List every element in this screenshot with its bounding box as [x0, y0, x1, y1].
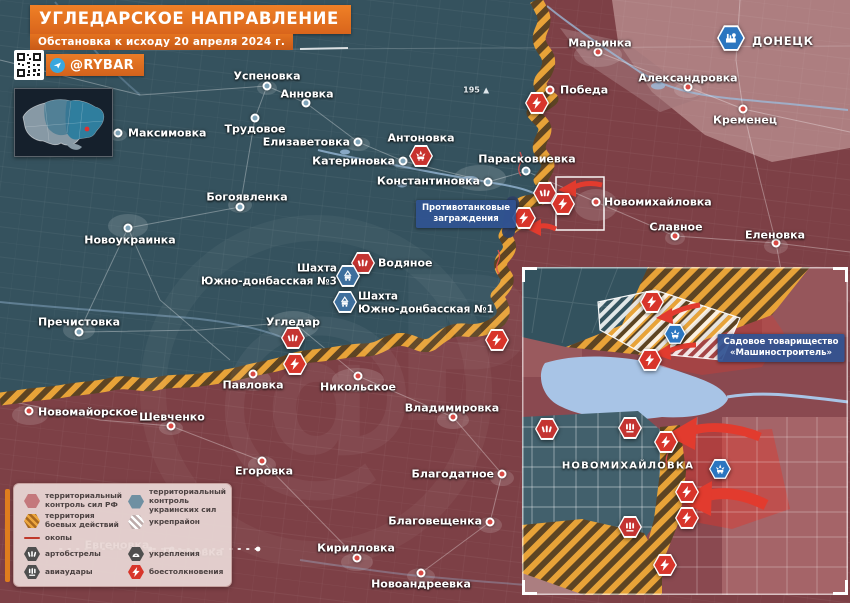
- qr-code-icon: [14, 50, 44, 80]
- legend-accent-bar: [5, 489, 10, 582]
- legend-swatch-combat-zone: [24, 514, 40, 528]
- legend-panel: территориальный контроль сил РФтерритори…: [13, 483, 232, 587]
- legend-fortification-icon: [128, 547, 144, 561]
- legend-item: укрепрайон: [128, 512, 226, 532]
- legend-label: территориальный контроль сил РФ: [45, 492, 122, 510]
- legend-fort-area-icon: [128, 515, 144, 529]
- legend-zone-ua-icon: [128, 495, 144, 509]
- telegram-handle: @RYBAR: [70, 58, 134, 73]
- legend-column-left: территориальный контроль сил РФтерритори…: [24, 491, 120, 581]
- legend-item: укрепления: [128, 545, 226, 563]
- subtitle-banner: Обстановка к исходу 20 апреля 2024 г.: [30, 34, 293, 50]
- legend-combat-zone-icon: [24, 514, 40, 528]
- trench-line-swatch: [24, 537, 40, 539]
- legend-swatch-clash: [128, 565, 144, 579]
- legend-label: артобстрелы: [45, 550, 101, 559]
- header-banner: УГЛЕДАРСКОЕ НАПРАВЛЕНИЕ: [30, 5, 351, 34]
- page-subtitle: Обстановка к исходу 20 апреля 2024 г.: [38, 36, 285, 48]
- legend-label: боестолкновения: [149, 568, 223, 577]
- page-title: УГЛЕДАРСКОЕ НАПРАВЛЕНИЕ: [39, 11, 339, 28]
- legend-swatch-airstrike: [24, 565, 40, 579]
- legend-label: укрепрайон: [149, 518, 200, 527]
- ukraine-locator-map: [14, 88, 113, 157]
- legend-item: территориальный контроль украинских сил: [128, 491, 226, 512]
- legend-clash-icon: [128, 565, 144, 579]
- legend-item: территориальный контроль сил РФ: [24, 491, 120, 511]
- legend-item: боестолкновения: [128, 563, 226, 581]
- location-dot: [85, 127, 90, 132]
- legend-label: окопы: [45, 534, 72, 543]
- map-infographic: @ РЫБАРЬ: [0, 0, 850, 603]
- legend-item: авиаудары: [24, 563, 120, 581]
- legend-label: авиаудары: [45, 568, 93, 577]
- legend-artillery-icon: [24, 547, 40, 561]
- legend-swatch-fort-area: [128, 515, 144, 529]
- legend-swatch-zone-ru: [24, 494, 40, 508]
- legend-airstrike-icon: [24, 565, 40, 579]
- detail-inset-map: [522, 267, 848, 595]
- legend-label: территориальный контроль украинских сил: [149, 488, 226, 515]
- legend-swatch-artillery: [24, 547, 40, 561]
- telegram-channel-badge: @RYBAR: [46, 54, 144, 76]
- telegram-icon: [50, 58, 65, 73]
- legend-swatch-fortification: [128, 547, 144, 561]
- legend-item: [128, 532, 226, 545]
- legend-swatch-trench-line: [24, 531, 40, 545]
- legend-item: артобстрелы: [24, 545, 120, 563]
- legend-zone-ru-icon: [24, 494, 40, 508]
- legend-item: окопы: [24, 531, 120, 545]
- legend-swatch-zone-ua: [128, 495, 144, 509]
- legend-item: территория боевых действий: [24, 511, 120, 531]
- legend-label: укрепления: [149, 550, 200, 559]
- legend-swatch-none: [128, 532, 144, 546]
- legend-label: территория боевых действий: [45, 512, 120, 530]
- legend-column-right: территориальный контроль украинских силу…: [128, 491, 226, 581]
